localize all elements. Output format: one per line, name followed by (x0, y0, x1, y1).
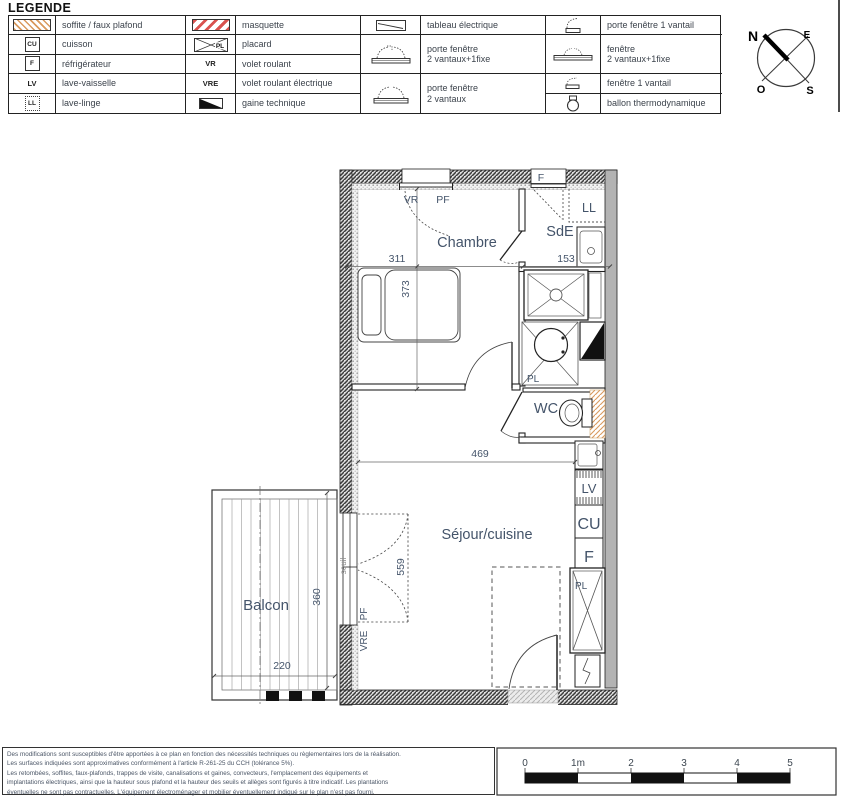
tag-pl-closet: PL (575, 581, 588, 592)
north-needle (764, 35, 788, 60)
floor-plan-drawing: N E O S (0, 0, 841, 800)
scale-tick-label: 3 (681, 758, 687, 769)
scale-tick-label: 5 (787, 758, 793, 769)
floor-plan-page: LEGENDE soffite / faux plafond CU cuisso… (0, 0, 841, 800)
sde-window: F (531, 169, 566, 221)
room-label-sejour: Séjour/cuisine (441, 527, 532, 543)
tag-pl-bath: PL (527, 374, 540, 385)
room-label-balcon: Balcon (243, 597, 289, 614)
compass-o: O (757, 84, 766, 96)
balcony-post (266, 691, 279, 701)
compass-rose: N E O S (748, 28, 815, 97)
bed (358, 268, 460, 342)
tag-seuil: seuil (339, 558, 348, 575)
disclaimer-line: Les retombées, soffites, faux-plafonds, … (7, 769, 490, 778)
tag-cu: CU (577, 516, 600, 533)
scale-bar: 0 1m 2 3 4 5 (497, 748, 836, 795)
pillow (362, 275, 381, 335)
compass-n: N (748, 28, 758, 44)
room-label-sde: SdE (546, 224, 574, 240)
technical-box (575, 655, 600, 687)
shower-ledge (589, 273, 601, 318)
disclaimer-line: implantations électriques, ainsi que la … (7, 778, 490, 787)
disclaimer-line: éventuelles ne sont pas contractuelles. … (7, 788, 490, 797)
tag-lv: LV (582, 481, 597, 496)
dim-153: 153 (557, 253, 575, 265)
dim-311: 311 (389, 253, 406, 265)
tag-f-fridge: F (584, 549, 594, 566)
tag-pf-top: PF (436, 194, 449, 206)
room-label-chambre: Chambre (437, 235, 497, 251)
room-label-wc: WC (534, 401, 558, 417)
compass-e: E (804, 30, 811, 41)
tag-pf-balcony: PF (359, 608, 370, 621)
disclaimer-line: Des modifications sont susceptibles d'êt… (7, 750, 490, 759)
scale-tick-label: 1m (571, 758, 585, 769)
gaine-technique (580, 322, 605, 360)
chambre-door (465, 342, 512, 388)
tag-ll: LL (582, 201, 596, 215)
disclaimer-box: Des modifications sont susceptibles d'êt… (2, 747, 495, 795)
dim-360: 360 (311, 588, 323, 606)
sde-door (500, 231, 522, 264)
toilet-tank (582, 399, 592, 427)
dim-469: 469 (471, 448, 489, 460)
party-wall (605, 170, 617, 688)
balcony-post (289, 691, 302, 701)
dim-220: 220 (273, 660, 291, 672)
duvet (385, 270, 458, 340)
scale-tick-label: 2 (628, 758, 634, 769)
dim-373: 373 (400, 280, 412, 298)
sde-fixtures (522, 189, 605, 385)
entrance-door (508, 635, 558, 706)
scale-tick-label: 4 (734, 758, 740, 769)
wc-fixtures (560, 390, 606, 438)
compass-s: S (806, 85, 813, 97)
furniture-dashed-outline (492, 567, 560, 687)
tag-vr: VR (404, 194, 419, 206)
disclaimer-line: Les surfaces indiquées sont approximativ… (7, 759, 490, 768)
balcony-post (312, 691, 325, 701)
dim-559: 559 (395, 558, 407, 576)
window-swing-lines (534, 190, 563, 221)
window-f-label: F (538, 172, 544, 184)
tag-vre: VRE (359, 630, 370, 651)
wc-door (501, 392, 522, 437)
scale-tick-label: 0 (522, 758, 528, 769)
